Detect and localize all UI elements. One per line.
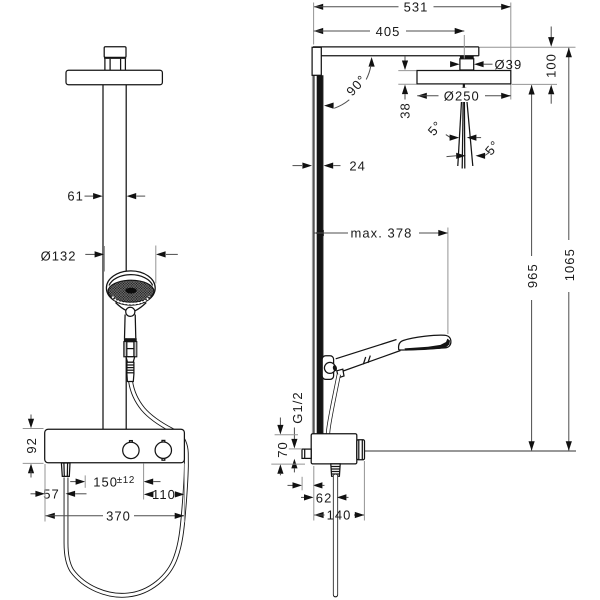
svg-text:G1/2: G1/2 xyxy=(290,391,305,423)
svg-text:61: 61 xyxy=(67,188,84,203)
svg-text:Ø39: Ø39 xyxy=(495,57,523,72)
svg-text:531: 531 xyxy=(404,0,429,15)
svg-text:Ø250: Ø250 xyxy=(444,89,480,104)
svg-text:1065: 1065 xyxy=(562,248,577,281)
svg-text:57: 57 xyxy=(43,487,60,502)
svg-text:max. 378: max. 378 xyxy=(351,226,413,241)
svg-text:92: 92 xyxy=(24,437,39,454)
svg-text:150: 150 xyxy=(93,474,118,489)
svg-text:405: 405 xyxy=(376,24,401,39)
svg-text:Ø132: Ø132 xyxy=(41,248,77,263)
svg-text:110: 110 xyxy=(152,487,176,502)
svg-text:38: 38 xyxy=(397,102,412,119)
svg-text:90°: 90° xyxy=(343,72,369,99)
svg-text:100: 100 xyxy=(543,53,558,78)
svg-text:5°: 5° xyxy=(425,118,446,139)
svg-text:70: 70 xyxy=(275,441,290,458)
svg-text:±12: ±12 xyxy=(117,475,135,486)
svg-text:24: 24 xyxy=(349,158,366,173)
svg-text:62: 62 xyxy=(316,490,333,505)
svg-text:140: 140 xyxy=(327,508,352,523)
svg-text:965: 965 xyxy=(525,263,540,288)
svg-text:370: 370 xyxy=(106,508,131,523)
